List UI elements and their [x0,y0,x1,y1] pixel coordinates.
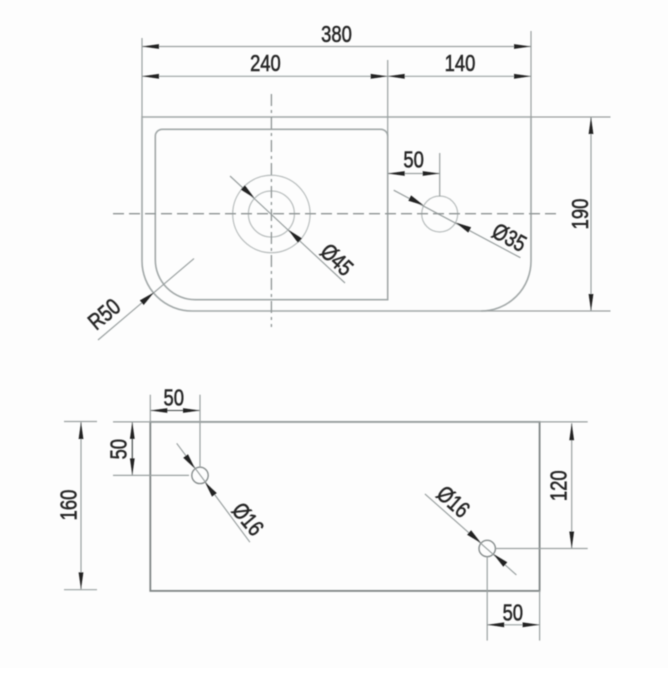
svg-text:140: 140 [445,51,476,76]
svg-text:50: 50 [403,148,423,173]
svg-text:240: 240 [250,51,281,76]
svg-text:50: 50 [503,601,523,626]
svg-text:160: 160 [56,490,81,521]
svg-text:190: 190 [568,199,593,230]
svg-text:50: 50 [163,386,183,411]
svg-text:120: 120 [546,470,571,501]
svg-text:50: 50 [107,439,132,459]
svg-text:380: 380 [321,22,352,47]
